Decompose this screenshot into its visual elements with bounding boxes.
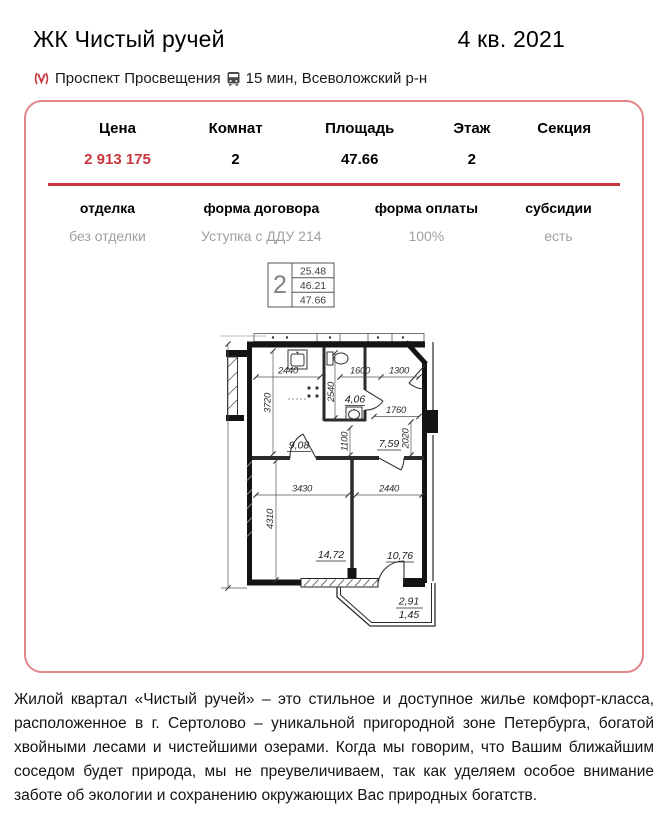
price-column: Цена 2 913 175 bbox=[48, 120, 187, 168]
area-hall: 7,59 bbox=[378, 438, 399, 450]
finish-value: без отделки bbox=[48, 228, 167, 244]
stamp-total-area: 47.66 bbox=[299, 295, 325, 307]
project-description: Жилой квартал «Чистый ручей» – это стиль… bbox=[14, 688, 654, 808]
payment-value: 100% bbox=[356, 228, 497, 244]
page-title: ЖК Чистый ручей bbox=[33, 26, 225, 53]
payment-label: форма оплаты bbox=[356, 200, 497, 216]
payment-column: форма оплаты 100% bbox=[356, 200, 497, 244]
rooms-column: Комнат 2 bbox=[187, 120, 284, 168]
rooms-label: Комнат bbox=[187, 120, 284, 137]
area-living-room: 14,72 bbox=[317, 549, 343, 561]
area-label: Площадь bbox=[284, 120, 435, 137]
contract-value: Уступка с ДДУ 214 bbox=[167, 228, 356, 244]
dim-hall-height: 2020 bbox=[400, 428, 411, 450]
commute-label: 15 мин, Всеволожский р-н bbox=[246, 70, 428, 87]
area-bedroom: 10,76 bbox=[386, 550, 412, 562]
area-value: 47.66 bbox=[284, 151, 435, 168]
page-header: ЖК Чистый ручей 4 кв. 2021 bbox=[33, 26, 635, 53]
completion-quarter: 4 кв. 2021 bbox=[458, 26, 565, 53]
floor-plan-container: 2 25.48 46.21 47.66 bbox=[48, 254, 620, 656]
subsidy-column: субсидии есть bbox=[497, 200, 620, 244]
dim-living-height: 4310 bbox=[265, 508, 276, 529]
price-value: 2 913 175 bbox=[48, 151, 187, 168]
red-divider bbox=[48, 183, 620, 186]
toilet bbox=[327, 352, 348, 365]
section-value bbox=[508, 151, 620, 166]
floor-label: Этаж bbox=[435, 120, 508, 137]
dim-kitchen-height: 3720 bbox=[262, 392, 273, 413]
balcony-outline bbox=[337, 583, 435, 626]
dim-bath-height: 2540 bbox=[326, 381, 337, 403]
pilaster bbox=[226, 350, 247, 421]
dim-hall-mid: 1760 bbox=[386, 405, 407, 416]
area-balcony: 2,91 bbox=[397, 596, 418, 608]
dim-bedroom-width: 2440 bbox=[378, 484, 400, 495]
metro-icon bbox=[33, 71, 50, 86]
dim-passage-height: 1100 bbox=[339, 431, 350, 451]
section-column: Секция bbox=[508, 120, 620, 168]
area-balcony-reduced: 1,45 bbox=[398, 609, 419, 621]
stamp-living-area: 25.48 bbox=[299, 266, 325, 278]
summary-row: Цена 2 913 175 Комнат 2 Площадь 47.66 Эт… bbox=[48, 120, 620, 168]
facade-band bbox=[220, 334, 424, 342]
contract-column: форма договора Уступка с ДДУ 214 bbox=[167, 200, 356, 244]
rooms-value: 2 bbox=[187, 151, 284, 168]
living-window bbox=[301, 579, 378, 588]
stove bbox=[288, 386, 319, 399]
stamp-apartment-area: 46.21 bbox=[299, 280, 325, 292]
right-exterior bbox=[427, 342, 438, 581]
subsidy-label: субсидии bbox=[497, 200, 620, 216]
area-column: Площадь 47.66 bbox=[284, 120, 435, 168]
bus-icon bbox=[226, 71, 241, 86]
floor-value: 2 bbox=[435, 151, 508, 168]
dim-hall-left: 1600 bbox=[350, 366, 371, 377]
area-kitchen: 9,08 bbox=[288, 440, 309, 452]
section-label: Секция bbox=[508, 120, 620, 137]
location-row: Проспект Просвещения 15 мин, Всеволожски… bbox=[33, 70, 635, 87]
dim-hall-right: 1300 bbox=[389, 366, 410, 377]
dim-kitchen-width: 2440 bbox=[277, 366, 299, 377]
listing-card: Цена 2 913 175 Комнат 2 Площадь 47.66 Эт… bbox=[24, 100, 644, 673]
floor-column: Этаж 2 bbox=[435, 120, 508, 168]
contract-label: форма договора bbox=[167, 200, 356, 216]
price-label: Цена bbox=[48, 120, 187, 137]
finish-column: отделка без отделки bbox=[48, 200, 167, 244]
finish-label: отделка bbox=[48, 200, 167, 216]
subsidy-value: есть bbox=[497, 228, 620, 244]
metro-station-label: Проспект Просвещения bbox=[55, 70, 221, 87]
dim-living-width: 3430 bbox=[292, 484, 313, 495]
floor-plan: 2 25.48 46.21 47.66 bbox=[217, 254, 452, 656]
interior-walls bbox=[252, 347, 424, 582]
stamp-rooms: 2 bbox=[273, 271, 287, 299]
area-bathroom: 4,06 bbox=[344, 394, 365, 406]
details-row: отделка без отделки форма договора Уступ… bbox=[48, 200, 620, 244]
